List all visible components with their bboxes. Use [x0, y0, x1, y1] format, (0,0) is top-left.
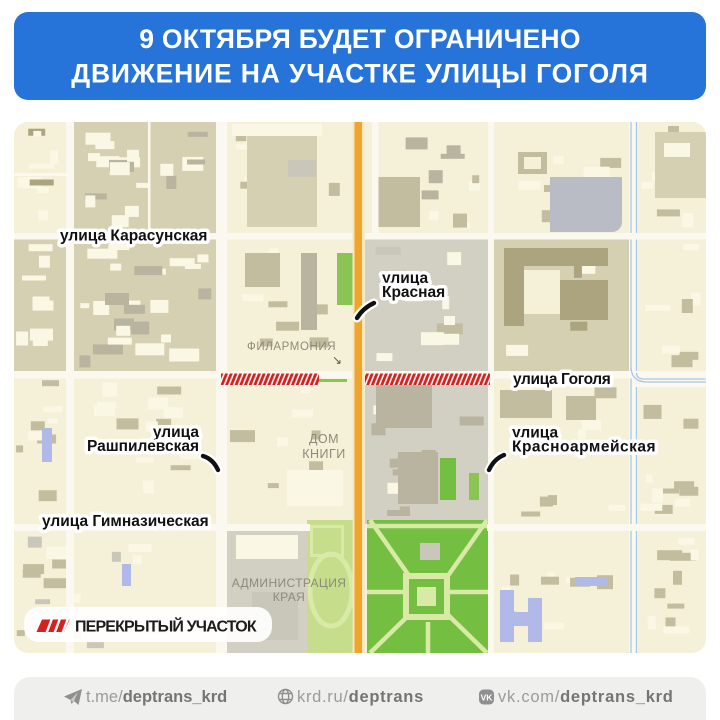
svg-text:улица Гимназическая: улица Гимназическая — [42, 513, 209, 530]
svg-text:t.me/deptrans_krd: t.me/deptrans_krd — [86, 688, 227, 706]
svg-text:vk.com/deptrans_krd: vk.com/deptrans_krd — [498, 688, 674, 706]
svg-text:улица Карасунская: улица Карасунская — [60, 228, 207, 245]
svg-text:VK: VK — [481, 693, 494, 703]
svg-text:КНИГИ: КНИГИ — [302, 447, 346, 461]
svg-text:↘: ↘ — [332, 353, 342, 367]
svg-text:КРАЯ: КРАЯ — [273, 590, 305, 604]
svg-text:Рашпилевская: Рашпилевская — [87, 438, 199, 455]
svg-text:ДОМ: ДОМ — [309, 432, 339, 446]
svg-text:АДМИНИСТРАЦИЯ: АДМИНИСТРАЦИЯ — [232, 576, 347, 590]
svg-text:Красноармейская: Красноармейская — [512, 439, 656, 456]
svg-text:Красная: Красная — [382, 284, 445, 301]
svg-text:9 ОКТЯБРЯ БУДЕТ ОГРАНИЧЕНО: 9 ОКТЯБРЯ БУДЕТ ОГРАНИЧЕНО — [139, 24, 580, 54]
svg-text:ДВИЖЕНИЕ НА УЧАСТКЕ УЛИЦЫ ГОГО: ДВИЖЕНИЕ НА УЧАСТКЕ УЛИЦЫ ГОГОЛЯ — [71, 59, 649, 89]
svg-text:улица Гоголя: улица Гоголя — [513, 371, 610, 388]
svg-text:krd.ru/deptrans: krd.ru/deptrans — [297, 688, 424, 706]
svg-text:ФИЛАРМОНИЯ: ФИЛАРМОНИЯ — [247, 341, 336, 353]
svg-text:ПЕРЕКРЫТЫЙ УЧАСТОК: ПЕРЕКРЫТЫЙ УЧАСТОК — [75, 617, 257, 636]
